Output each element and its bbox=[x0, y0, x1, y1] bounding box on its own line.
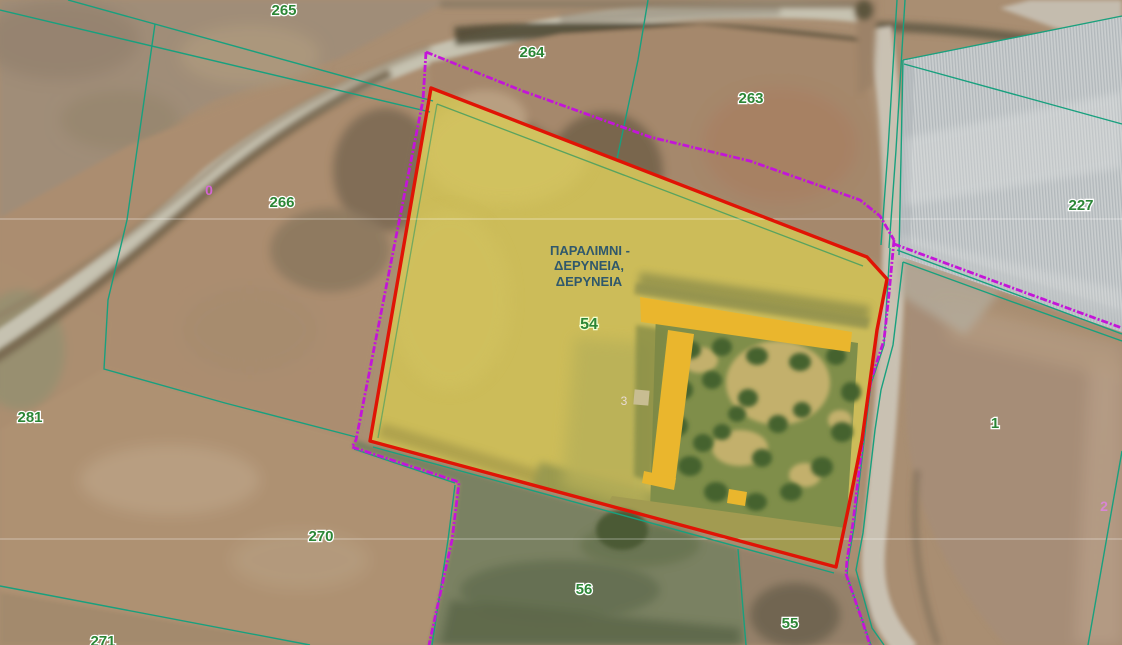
svg-text:54: 54 bbox=[580, 316, 598, 333]
svg-text:3: 3 bbox=[621, 394, 628, 408]
svg-text:2: 2 bbox=[1100, 498, 1108, 514]
svg-text:227: 227 bbox=[1068, 197, 1093, 214]
svg-text:1: 1 bbox=[991, 415, 999, 432]
svg-text:281: 281 bbox=[17, 409, 42, 426]
svg-text:ΔΕΡΥΝΕΙΑ,: ΔΕΡΥΝΕΙΑ, bbox=[554, 258, 624, 273]
svg-text:266: 266 bbox=[269, 194, 294, 211]
svg-text:263: 263 bbox=[738, 90, 763, 107]
svg-text:265: 265 bbox=[271, 2, 296, 19]
svg-text:271: 271 bbox=[90, 633, 115, 645]
svg-text:55: 55 bbox=[782, 615, 799, 632]
svg-text:ΔΕΡΥΝΕΙΑ: ΔΕΡΥΝΕΙΑ bbox=[556, 274, 623, 289]
svg-text:ΠΑΡΑΛΙΜΝΙ -: ΠΑΡΑΛΙΜΝΙ - bbox=[550, 243, 630, 258]
svg-text:264: 264 bbox=[519, 44, 545, 61]
svg-text:270: 270 bbox=[308, 528, 333, 545]
svg-text:0: 0 bbox=[205, 182, 213, 198]
svg-text:56: 56 bbox=[576, 581, 593, 598]
